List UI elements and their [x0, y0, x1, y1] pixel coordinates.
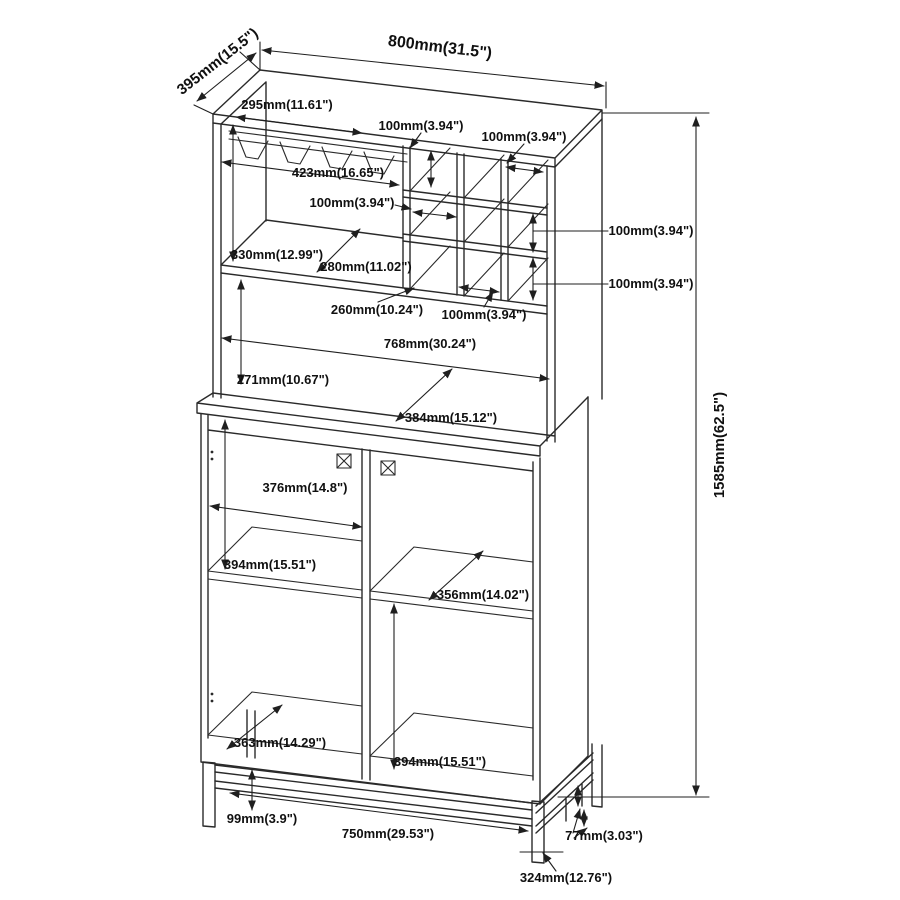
furniture-dimension-diagram: 395mm(15.5") 800mm(31.5") 295mm(11.61") … [0, 0, 900, 900]
cubby-shelves [403, 190, 547, 259]
label-width-800: 800mm(31.5") [387, 33, 493, 63]
label-394-upper: 394mm(15.51") [224, 557, 316, 572]
label-423: 423mm(16.65") [292, 165, 384, 180]
dim-line-100-colbottom [459, 287, 499, 292]
right-door-knob-icon [381, 461, 395, 475]
label-99: 99mm(3.9") [227, 811, 297, 826]
shelf-pin-hole [211, 458, 214, 461]
label-100-bottom: 100mm(3.94") [442, 307, 527, 322]
base-top-lines [197, 393, 588, 456]
door-knobs [337, 454, 395, 475]
left-door-knob-icon [337, 454, 351, 468]
leader-324 [543, 853, 556, 871]
label-depth-395: 395mm(15.5") [174, 25, 262, 99]
label-768: 768mm(30.24") [384, 336, 476, 351]
extension-lines [194, 42, 709, 852]
label-100-mid: 100mm(3.94") [310, 195, 395, 210]
center-partition [362, 449, 370, 780]
label-384: 384mm(15.12") [405, 410, 497, 425]
shelf-pin-hole [211, 700, 214, 703]
label-330: 330mm(12.99") [231, 247, 323, 262]
cubby-dividers [403, 146, 508, 301]
dim-line-100-col1 [413, 212, 456, 217]
label-260: 260mm(10.24") [331, 302, 423, 317]
label-394-lower: 394mm(15.51") [394, 754, 486, 769]
label-376: 376mm(14.8") [263, 480, 348, 495]
base-top-panel [197, 393, 588, 456]
label-height-1585: 1585mm(62.5") [711, 392, 728, 498]
label-100-top-right: 100mm(3.94") [482, 129, 567, 144]
cabinet-line-art: 395mm(15.5") 800mm(31.5") 295mm(11.61") … [0, 0, 900, 900]
label-280: 280mm(11.02") [320, 259, 411, 274]
label-363: 363mm(14.29") [234, 735, 326, 750]
label-100-top-left: 100mm(3.94") [379, 118, 464, 133]
label-356: 356mm(14.02") [437, 587, 529, 602]
shelf-pin-hole [211, 451, 214, 454]
label-750: 750mm(29.53") [342, 826, 434, 841]
dim-line-100-colright [506, 167, 543, 172]
label-324: 324mm(12.76") [520, 870, 612, 885]
dim-line-376 [210, 506, 362, 527]
label-100-right-row2: 100mm(3.94") [609, 223, 694, 238]
label-295: 295mm(11.61") [241, 97, 332, 112]
label-100-right-row3: 100mm(3.94") [609, 276, 694, 291]
leader-260 [378, 288, 414, 302]
dim-line-800 [262, 50, 604, 86]
shelf-pin-hole [211, 693, 214, 696]
label-77: 77mm(3.03") [565, 828, 643, 843]
label-271: 271mm(10.67") [237, 372, 329, 387]
dim-line-295 [236, 117, 362, 133]
